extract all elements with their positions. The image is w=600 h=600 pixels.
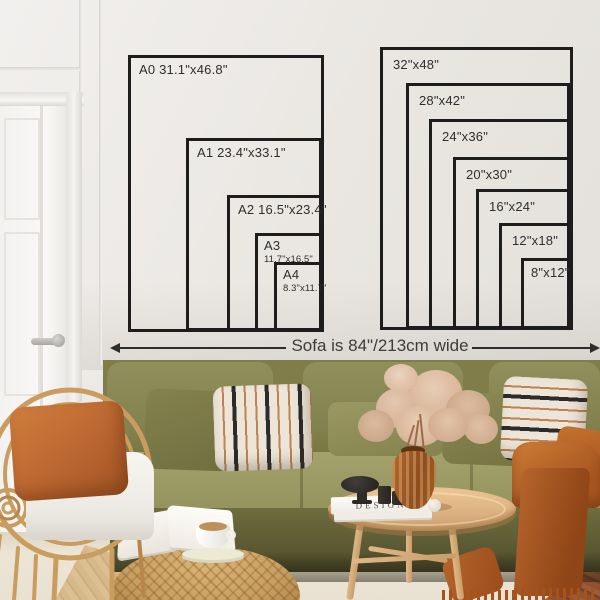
size-box-a4: A48.3"x11.7" <box>274 262 322 331</box>
size-label-a2: A2 16.5"x23.4" <box>238 202 327 218</box>
wall-molding <box>0 67 80 71</box>
throw-blanket-fall <box>514 468 591 596</box>
saucer <box>182 548 244 560</box>
door-panel <box>4 232 40 396</box>
dimension-line-right <box>472 347 590 349</box>
coffee-surface <box>199 522 227 531</box>
size-label-16x24: 16"x24" <box>489 199 535 215</box>
door-handle-rosette <box>52 334 65 347</box>
door-panel <box>4 118 40 220</box>
cup-handle <box>226 530 236 540</box>
blanket-fringe <box>442 590 514 600</box>
size-label-32x48: 32"x48" <box>393 57 439 73</box>
size-label-a4: A48.3"x11.7" <box>283 267 327 295</box>
size-label-a1: A1 23.4"x33.1" <box>197 145 286 161</box>
decor-sphere <box>428 499 441 512</box>
size-label-24x36: 24"x36" <box>442 129 488 145</box>
blanket-fringe <box>514 588 594 600</box>
poster-size-guide-scene: A0 31.1"x46.8" A1 23.4"x33.1" A2 16.5"x2… <box>0 0 600 600</box>
sofa-width-caption: Sofa is 84"/213cm wide <box>288 336 472 356</box>
size-box-8x12: 8"x12" <box>521 258 570 329</box>
black-candle-cup <box>378 486 391 504</box>
size-label-a0: A0 31.1"x46.8" <box>139 62 228 78</box>
wall-molding <box>99 0 102 365</box>
black-pedestal-bowl <box>341 476 379 493</box>
striped-pillow-left <box>213 383 314 471</box>
size-label-8x12: 8"x12" <box>531 265 570 281</box>
size-label-12x18: 12"x18" <box>512 233 558 249</box>
dimension-line-left <box>118 347 286 349</box>
dimension-arrow-right <box>590 343 600 353</box>
size-label-28x42: 28"x42" <box>419 93 465 109</box>
size-label-20x30: 20"x30" <box>466 167 512 183</box>
orange-pillow <box>9 400 129 502</box>
